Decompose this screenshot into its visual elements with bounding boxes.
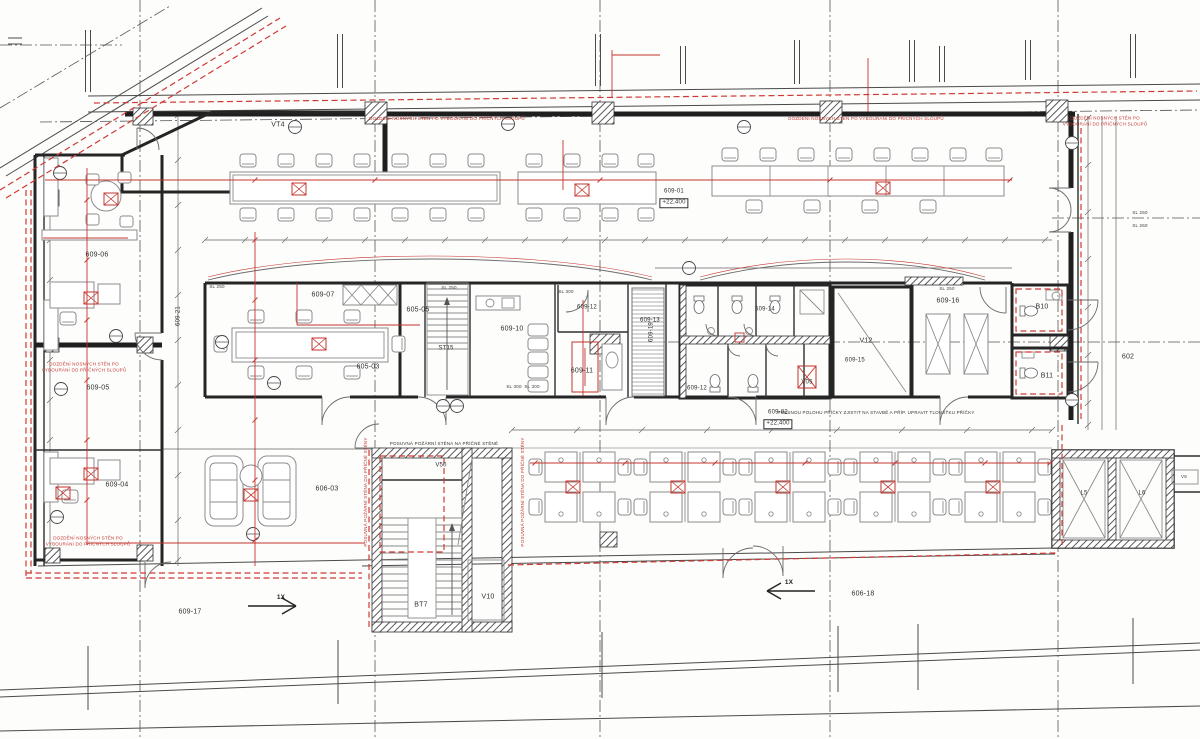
meeting-room-furniture bbox=[214, 285, 405, 379]
room-609-10-furniture bbox=[476, 296, 548, 392]
desk-clusters bbox=[529, 452, 1051, 522]
conference-tables bbox=[230, 148, 1004, 221]
axis-ticks-bottom bbox=[88, 618, 1133, 710]
axis-ticks-top bbox=[86, 30, 1136, 92]
floor-plan-canvas: VT4609-06609-21609-05609-04609-07605-056… bbox=[0, 0, 1200, 739]
core-small-rooms bbox=[590, 288, 664, 396]
lounge-furniture bbox=[205, 456, 296, 526]
stair-st15 bbox=[427, 283, 468, 395]
stairwell-bt7 bbox=[372, 448, 512, 632]
bathroom-block bbox=[680, 285, 830, 398]
elevators bbox=[1052, 450, 1200, 548]
direction-arrows bbox=[248, 583, 815, 614]
plan-linework bbox=[0, 0, 1200, 739]
room-609-16-furniture bbox=[926, 314, 988, 374]
